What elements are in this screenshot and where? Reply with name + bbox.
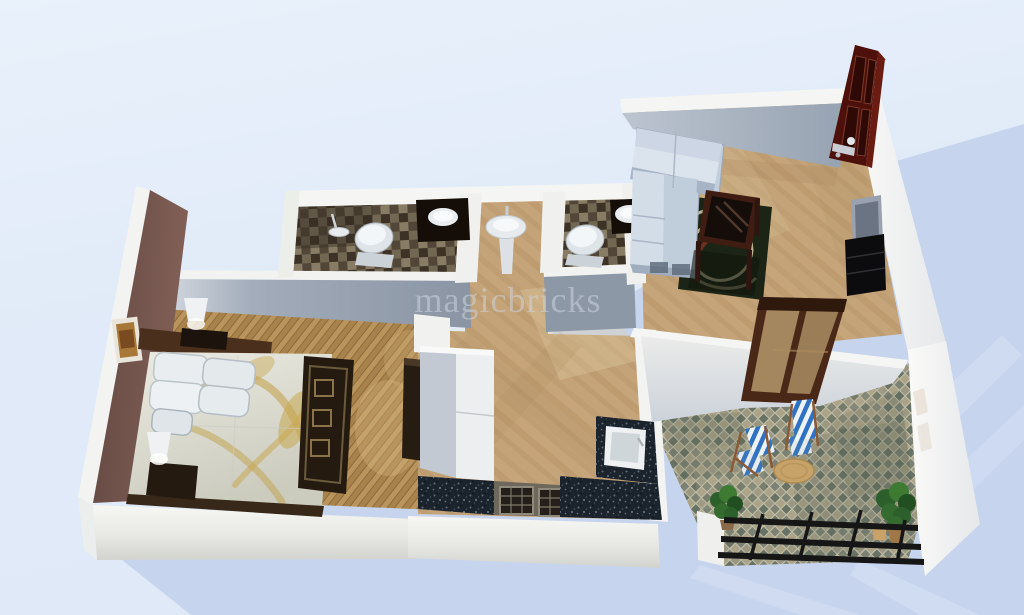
svg-text:magicbricks: magicbricks: [415, 280, 602, 320]
